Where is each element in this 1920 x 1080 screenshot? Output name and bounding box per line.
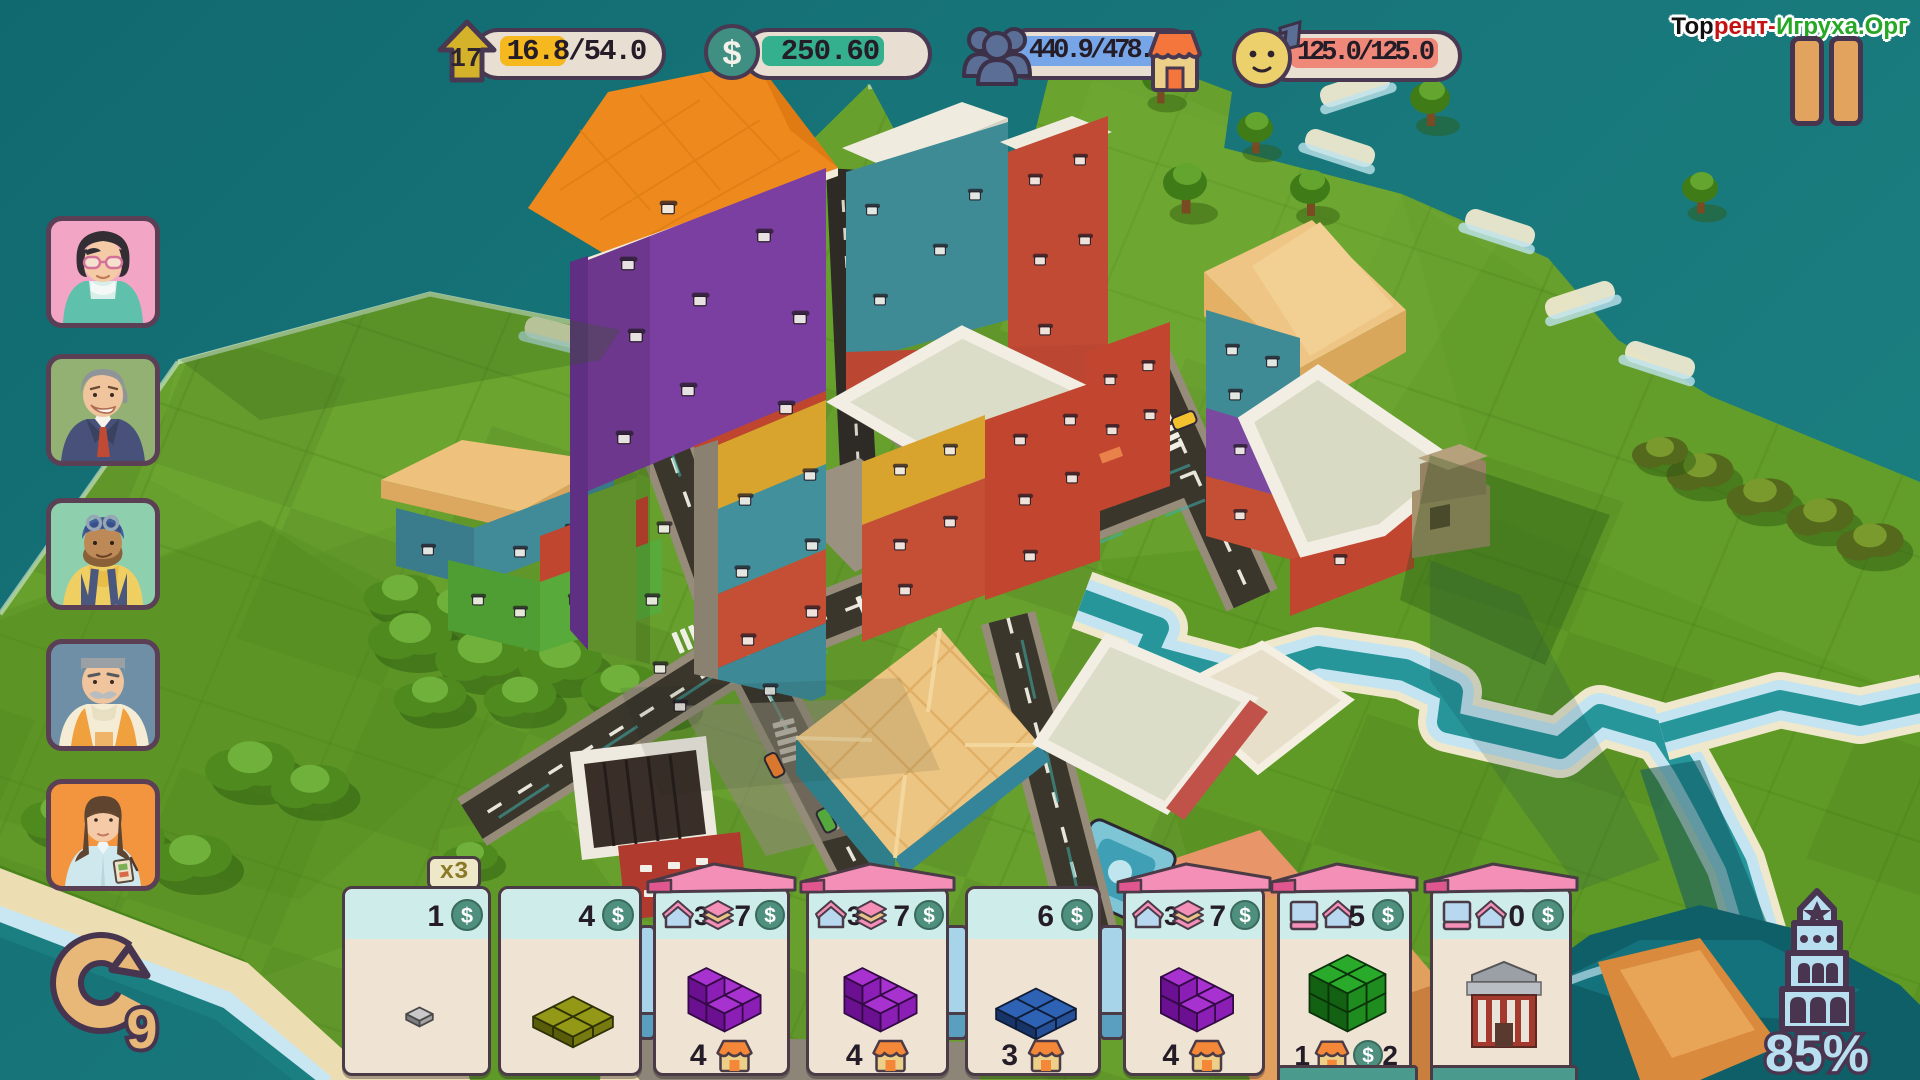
svg-text:4: 4 — [846, 1039, 863, 1072]
svg-text:1: 1 — [427, 900, 444, 933]
svg-text:7: 7 — [1209, 900, 1226, 933]
svg-text:3: 3 — [1001, 1039, 1018, 1072]
svg-text:85%: 85% — [1765, 1025, 1869, 1080]
svg-text:$: $ — [1070, 905, 1083, 930]
svg-text:$: $ — [1239, 906, 1252, 929]
svg-text:$: $ — [722, 37, 742, 75]
svg-text:7: 7 — [734, 900, 751, 933]
svg-text:17: 17 — [450, 45, 482, 75]
svg-text:4: 4 — [690, 1039, 707, 1072]
svg-text:5: 5 — [1348, 900, 1365, 933]
svg-text:$: $ — [1381, 905, 1394, 930]
svg-text:9: 9 — [126, 997, 157, 1060]
svg-text:4: 4 — [1162, 1039, 1179, 1072]
svg-text:$: $ — [923, 906, 936, 929]
svg-text:$: $ — [611, 905, 624, 930]
svg-text:6: 6 — [1037, 900, 1054, 933]
svg-text:$: $ — [460, 905, 473, 930]
svg-text:4: 4 — [578, 900, 595, 933]
svg-text:$: $ — [764, 906, 777, 929]
svg-text:7: 7 — [893, 900, 910, 933]
svg-text:0: 0 — [1508, 900, 1525, 933]
svg-text:$: $ — [1541, 905, 1554, 930]
